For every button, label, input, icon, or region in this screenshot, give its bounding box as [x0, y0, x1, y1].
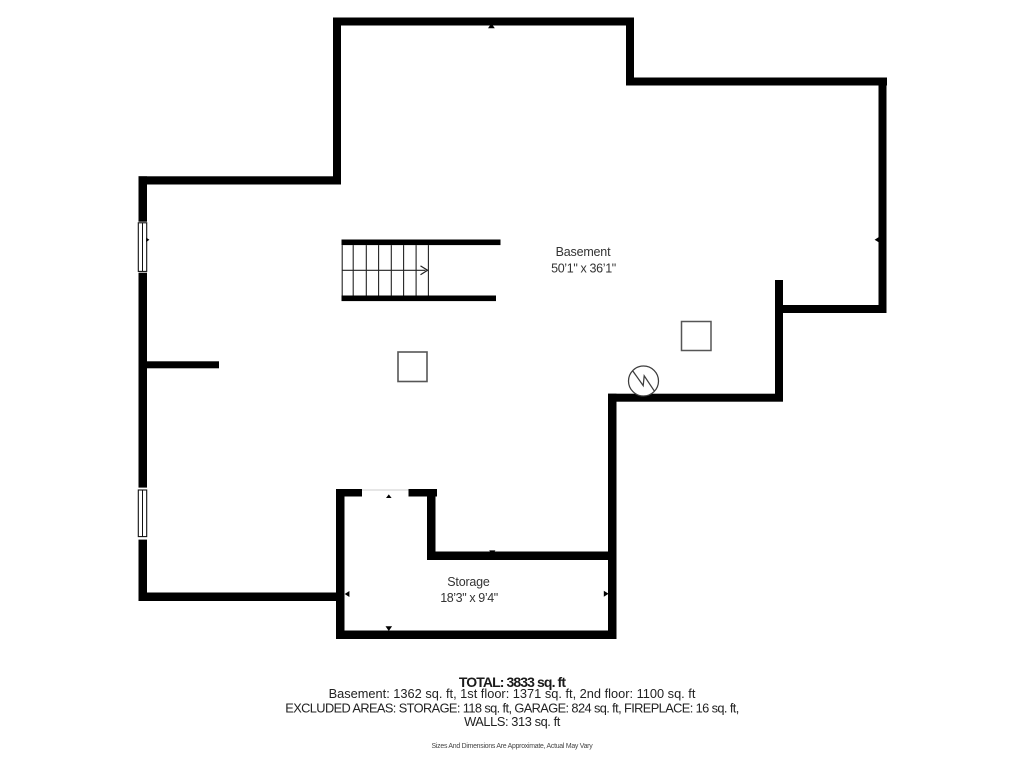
svg-text:WALLS: 313 sq. ft: WALLS: 313 sq. ft [464, 714, 561, 729]
svg-text:Sizes And Dimensions Are Appro: Sizes And Dimensions Are Approximate, Ac… [432, 743, 594, 750]
svg-text:Storage: Storage [447, 575, 490, 589]
svg-text:Basement: Basement [556, 245, 611, 259]
svg-text:18’3" x 9’4": 18’3" x 9’4" [440, 591, 498, 605]
svg-text:50’1" x 36’1": 50’1" x 36’1" [551, 261, 616, 275]
svg-text:Basement: 1362 sq. ft, 1st flo: Basement: 1362 sq. ft, 1st floor: 1371 s… [329, 686, 696, 701]
